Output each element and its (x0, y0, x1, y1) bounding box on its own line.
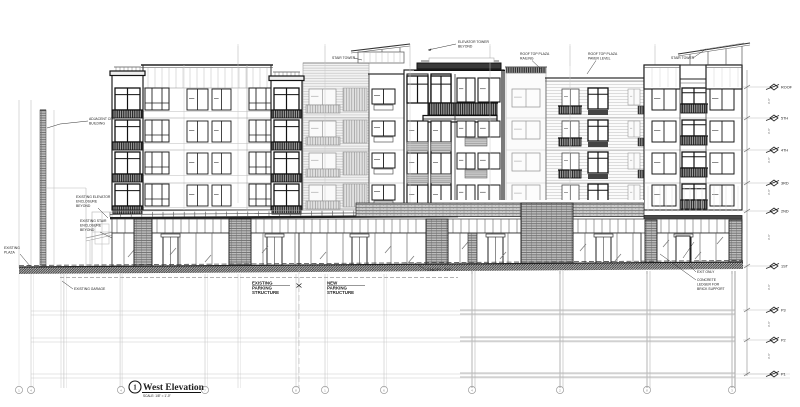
svg-text:9'-8": 9'-8" (767, 234, 771, 240)
svg-text:CANOPY - TYP: CANOPY - TYP (427, 268, 452, 272)
svg-text:2ND: 2ND (781, 210, 789, 214)
svg-text:LEDGER FOR: LEDGER FOR (697, 282, 720, 286)
svg-text:9'-8": 9'-8" (767, 321, 771, 327)
svg-text:STAIR TOWER: STAIR TOWER (332, 56, 356, 60)
svg-text:EXIT ONLY: EXIT ONLY (697, 270, 715, 274)
svg-text:9'-8": 9'-8" (767, 353, 771, 359)
svg-text:ENCLOSURE: ENCLOSURE (80, 223, 102, 227)
svg-text:CONCRETE: CONCRETE (697, 278, 717, 282)
svg-text:BRICK SUPPORT: BRICK SUPPORT (697, 287, 725, 291)
svg-text:BEYOND: BEYOND (80, 228, 95, 232)
svg-text:1ST: 1ST (781, 265, 789, 269)
svg-text:STRUCTURE: STRUCTURE (252, 290, 279, 295)
svg-text:PLAZA: PLAZA (4, 250, 15, 254)
svg-text:4TH: 4TH (781, 149, 788, 153)
svg-text:ELEVATOR TOWER: ELEVATOR TOWER (458, 40, 490, 44)
svg-text:BUILDING: BUILDING (89, 121, 105, 125)
svg-text:3RD: 3RD (781, 182, 789, 186)
svg-text:RAILING: RAILING (520, 56, 534, 60)
svg-text:P1: P1 (781, 373, 786, 377)
svg-text:ROOF TOP PLAZA: ROOF TOP PLAZA (588, 52, 618, 56)
svg-text:1: 1 (133, 384, 137, 392)
svg-text:STRUCTURE: STRUCTURE (327, 290, 354, 295)
svg-text:9'-8": 9'-8" (767, 157, 771, 163)
svg-text:EXISTING GARAGE: EXISTING GARAGE (74, 287, 106, 291)
svg-text:PAVER LEVEL: PAVER LEVEL (588, 56, 611, 60)
svg-text:ADJACENT CIVIC: ADJACENT CIVIC (89, 117, 117, 121)
svg-text:ENCLOSURE: ENCLOSURE (76, 199, 98, 203)
svg-text:9'-8": 9'-8" (767, 284, 771, 290)
svg-text:SCALE: 1/8" = 1'-0": SCALE: 1/8" = 1'-0" (143, 394, 171, 398)
svg-text:EXISTING ELEVATOR: EXISTING ELEVATOR (76, 195, 111, 199)
svg-text:9'-8": 9'-8" (767, 189, 771, 195)
svg-text:EXISTING STAIR: EXISTING STAIR (80, 219, 107, 223)
svg-text:EXISTING: EXISTING (4, 246, 20, 250)
svg-text:9'-8": 9'-8" (767, 98, 771, 104)
svg-text:BEYOND: BEYOND (76, 204, 91, 208)
svg-text:STAIR TOWER: STAIR TOWER (671, 56, 695, 60)
svg-text:P2: P2 (781, 339, 786, 343)
svg-text:P3: P3 (781, 309, 786, 313)
svg-text:BEYOND: BEYOND (458, 44, 473, 48)
svg-text:West Elevation: West Elevation (143, 383, 205, 393)
svg-text:ROOF: ROOF (781, 86, 793, 90)
svg-text:ROOF TOP PLAZA: ROOF TOP PLAZA (520, 52, 550, 56)
svg-text:9'-8": 9'-8" (767, 128, 771, 134)
svg-text:5TH: 5TH (781, 117, 788, 121)
